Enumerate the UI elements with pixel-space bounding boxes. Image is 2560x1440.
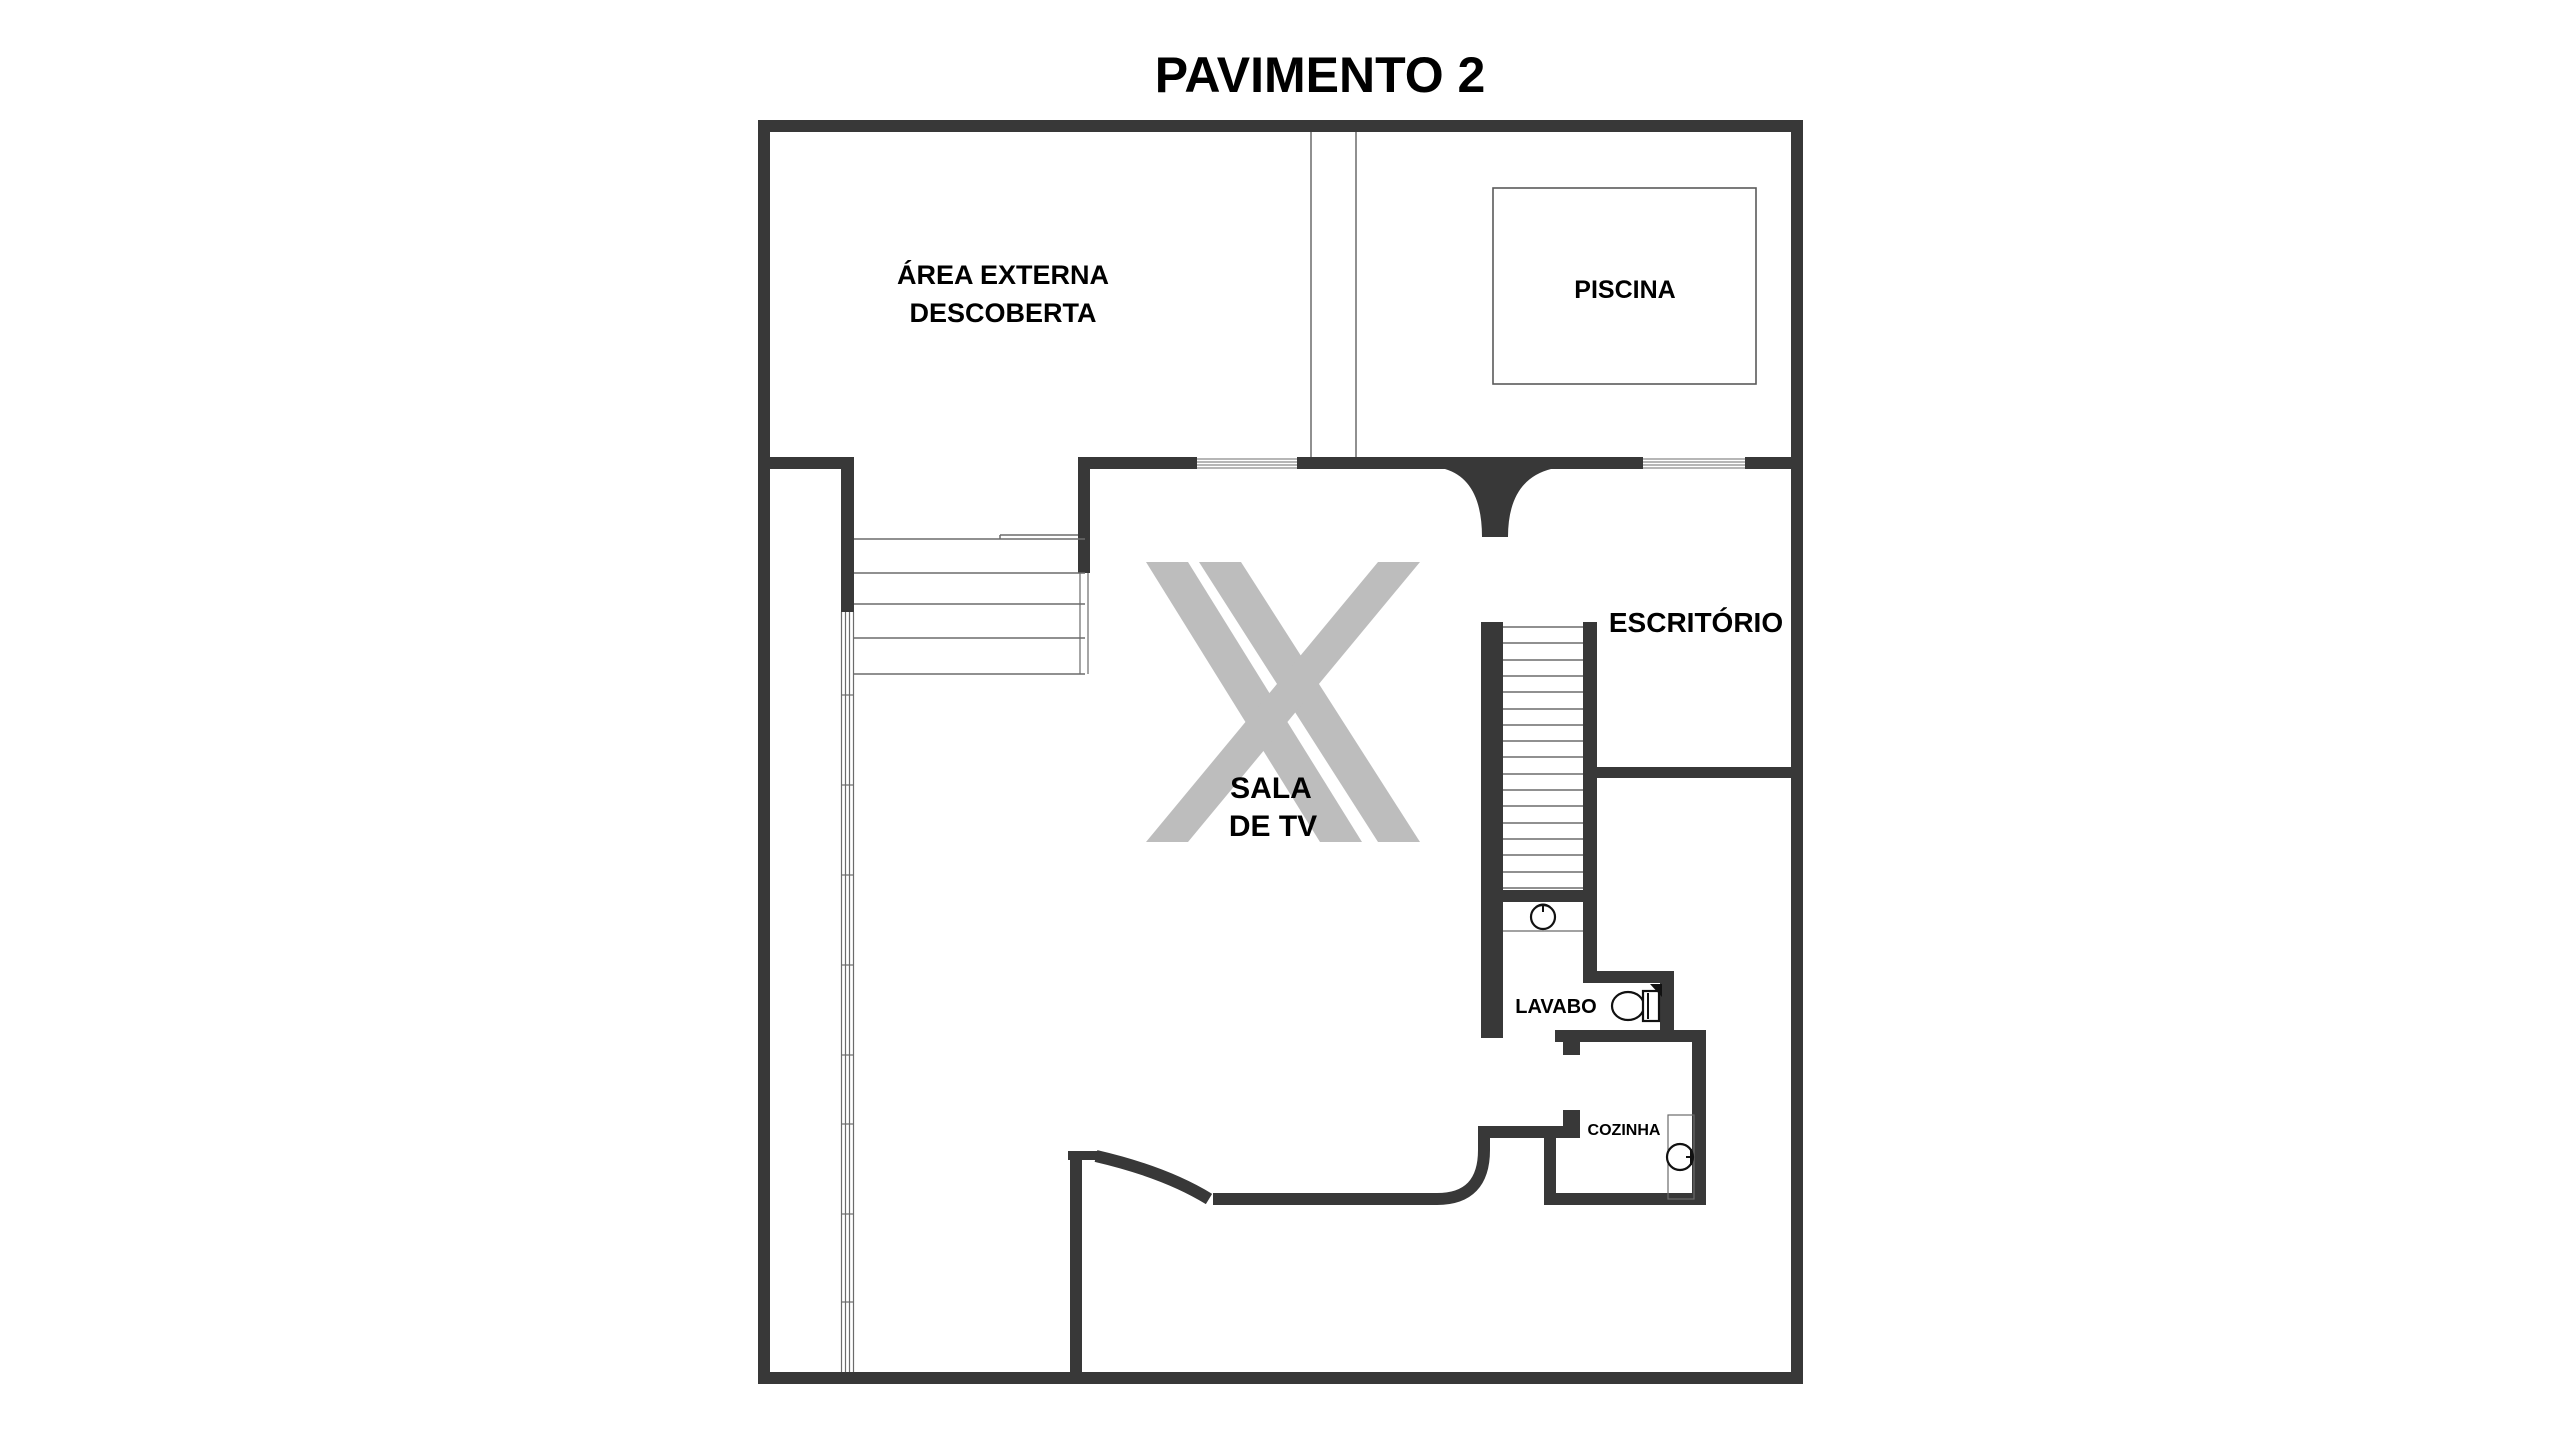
flared-wall-stub <box>1445 469 1551 537</box>
room-label-area-externa-2: DESCOBERTA <box>909 298 1096 328</box>
room-label-sala-2: DE TV <box>1229 810 1317 843</box>
toilet-icon <box>1612 984 1662 1021</box>
terrace-wall-band <box>758 457 1791 537</box>
glass-wall-icon <box>841 612 854 1372</box>
room-label-sala-1: SALA <box>1230 772 1312 805</box>
floor-plan-drawing: PAVIMENTO 2 PISCINA <box>0 0 2560 1440</box>
outer-wall-right <box>1791 120 1803 1384</box>
lavabo: LAVABO <box>1503 905 1706 1056</box>
wall-segment <box>1297 457 1643 469</box>
alcove-wall <box>1068 1151 1209 1372</box>
wall-segment <box>1745 457 1791 469</box>
page-title: PAVIMENTO 2 <box>1155 47 1486 103</box>
wall-segment <box>1078 457 1197 469</box>
stair-wall-right <box>1583 622 1597 982</box>
cozinha-top-wall <box>1478 1126 1580 1138</box>
room-label-area-externa-1: ÁREA EXTERNA <box>897 259 1109 290</box>
stair-side-wall <box>1078 457 1090 573</box>
stair-bottom-wall <box>1481 890 1597 902</box>
staircase-main-icon <box>1481 622 1597 1038</box>
curved-wall <box>1213 1136 1484 1199</box>
lavabo-right-wall <box>1660 971 1674 1032</box>
room-label-piscina: PISCINA <box>1574 276 1675 304</box>
lavabo-bottom-wall <box>1555 1030 1706 1042</box>
outer-wall-left <box>758 120 770 1384</box>
door-jamb-stub <box>1563 1042 1580 1055</box>
escritorio-bottom-wall <box>1597 767 1791 778</box>
area-externa: ÁREA EXTERNA DESCOBERTA <box>897 259 1109 328</box>
room-label-lavabo: LAVABO <box>1515 996 1596 1018</box>
washbasin-icon <box>1503 905 1583 932</box>
alcove-vertical-wall <box>1070 1155 1082 1372</box>
cozinha: COZINHA <box>1213 1030 1706 1205</box>
door-jamb-stub <box>1563 1110 1580 1126</box>
floor-plan-page: PAVIMENTO 2 PISCINA <box>0 0 2560 1440</box>
entry-steps-icon <box>841 457 1090 674</box>
outer-wall-top <box>758 120 1803 132</box>
window-icon <box>1197 459 1297 468</box>
kitchen-sink-icon <box>1667 1115 1694 1199</box>
wall-segment <box>758 457 853 469</box>
escritorio: ESCRITÓRIO <box>1597 607 1791 778</box>
alcove-wall-cap <box>1068 1151 1100 1160</box>
piscina-area: PISCINA <box>1311 132 1756 457</box>
room-label-cozinha: COZINHA <box>1588 1122 1661 1139</box>
window-icon <box>1643 459 1745 468</box>
alcove-curved-wall <box>1096 1156 1209 1199</box>
stair-side-wall <box>841 457 854 612</box>
stair-wall-left <box>1481 622 1503 1038</box>
room-label-escritorio: ESCRITÓRIO <box>1609 607 1783 638</box>
stair-treads <box>1503 627 1583 888</box>
outer-wall-bottom <box>758 1372 1803 1384</box>
